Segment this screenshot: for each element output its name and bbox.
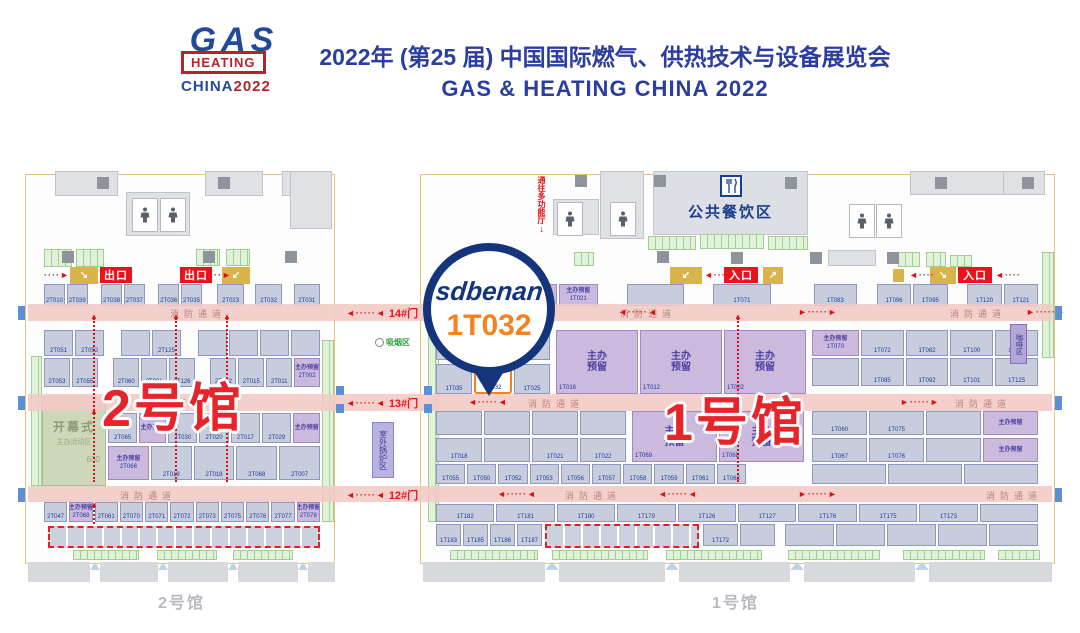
booth [812, 358, 859, 386]
pillar [62, 251, 74, 263]
booth-1T100: 1T100 [950, 330, 993, 356]
booth-1T176: 1T176 [798, 504, 856, 522]
pillar [731, 252, 743, 264]
small-booth-strip [233, 550, 293, 560]
pillar [1022, 177, 1034, 189]
booth-1T060: 1T060 [812, 411, 867, 435]
booth-1T083: 1T083 [814, 284, 858, 306]
booth-1T173: 1T173 [919, 504, 977, 522]
booth-2T029: 2T029 [262, 413, 291, 443]
booth-row: 2T0512T0522T125 [44, 330, 320, 356]
booth [980, 504, 1038, 522]
wall-block [423, 562, 545, 582]
booth-row: 1T0551T0501T0521T0531T0561T0571T0581T059… [436, 464, 746, 484]
booth-2T018: 2T018 [194, 446, 235, 480]
pillar [657, 251, 669, 263]
booth-1T127: 1T127 [738, 504, 796, 522]
booth-1T179: 1T179 [617, 504, 675, 522]
booth-1T070: 主办预留1T070 [812, 330, 859, 356]
booth-1T126: 1T126 [678, 504, 736, 522]
gate-label: ◄·····◄14#门 [346, 306, 418, 319]
lane-arrow: ►·····► [798, 307, 838, 317]
booth-1T062: 1T062 [717, 464, 746, 484]
booth-1T021: 主办预留1T021 [559, 284, 598, 306]
fire-lane-label: 消防通道 [955, 397, 1011, 410]
booth-1T025: 1T025 [514, 364, 550, 394]
booth-1T072: 1T072 [861, 330, 904, 356]
booth [926, 411, 981, 435]
booth-2T002: 主办预留2T002 [294, 358, 320, 387]
highlight-zone [545, 524, 699, 548]
aisle-arrow: ▲▲ [93, 318, 95, 482]
small-booth-cluster [700, 234, 764, 249]
booth-2T010: 2T010 [44, 284, 65, 306]
booth-1T175: 1T175 [859, 504, 917, 522]
gate-label: ◄·····◄13#门 [346, 396, 418, 409]
pillar [97, 177, 109, 189]
small-booth-strip [73, 550, 139, 560]
to-multifunction-hall-label: 通往多功能厅↓ [533, 176, 547, 235]
direction-arrow-block: ↘ [70, 267, 98, 284]
booth [436, 411, 482, 435]
gate-arrow-icon: ◄·····◄ [346, 398, 386, 408]
booth-1T120: 1T120 [967, 284, 1001, 306]
gate-marker [1055, 396, 1062, 410]
logo-heating-text: HEATING [181, 51, 266, 74]
booth-2T068: 2T068 [236, 446, 277, 480]
booth-1T076: 1T076 [869, 438, 924, 462]
booth [291, 330, 320, 356]
fire-lane-label: 消防通道 [528, 397, 584, 410]
wall-block [28, 562, 90, 582]
booth [926, 438, 981, 462]
smoking-icon [375, 338, 384, 347]
small-booth-cluster [898, 252, 920, 267]
expo-logo: GAS HEATING CHINA2022 [175, 26, 293, 114]
pillar [203, 251, 215, 263]
small-booth-strip [450, 550, 538, 560]
restroom-icon [160, 198, 186, 232]
booth [580, 411, 626, 435]
booth-row: 1T0851T0921T1011T125 [812, 358, 1038, 386]
small-booth-cluster [574, 252, 594, 266]
small-booth-strip [552, 550, 648, 560]
booth-2T052: 2T052 [75, 330, 104, 356]
booth-2T051: 2T051 [44, 330, 73, 356]
expo-title-cn: 2022年 (第25 届) 中国国际燃气、供热技术与设备展览会 [300, 38, 910, 72]
booth-2T007: 2T007 [279, 446, 320, 480]
wall-block [308, 562, 335, 582]
fire-lane: 消防通道消防通道消防通道◄·····◄◄·····◄►·····► [28, 486, 1052, 502]
booth-1T052: 1T052 [498, 464, 527, 484]
booth-1T059: 1T059 [654, 464, 683, 484]
hall1-big-label: 1号馆 [664, 380, 806, 455]
booth-row: 1T172 [703, 524, 775, 546]
logo-china-year: CHINA2022 [181, 78, 293, 95]
booth-row [436, 411, 626, 435]
booth-1T075: 1T075 [869, 411, 924, 435]
service-room [205, 171, 263, 196]
expo-title-en: GAS & HEATING CHINA 2022 [300, 76, 910, 102]
service-room [828, 250, 876, 266]
restroom-icon [132, 198, 158, 232]
booth-1T056: 1T056 [561, 464, 590, 484]
booth-2T072: 2T072 [170, 502, 193, 522]
aisle-arrow: ▲ [93, 506, 95, 524]
gate-arrow-icon: ◄·····◄ [346, 490, 386, 500]
booth-2T032: 2T032 [255, 284, 281, 306]
logo-gas-text: GAS [175, 26, 293, 54]
pillar [935, 177, 947, 189]
restroom-icon [610, 202, 636, 236]
fire-lane-label: 消防通道 [120, 489, 176, 502]
booth-1T186: 1T186 [490, 524, 515, 546]
restroom-icon [849, 204, 875, 238]
booth [785, 524, 834, 546]
booth [229, 330, 258, 356]
hall2-big-label: 2号馆 [102, 366, 244, 441]
small-booth-cluster [768, 236, 808, 250]
booth [484, 411, 530, 435]
floor-plan-page: GAS HEATING CHINA2022 2022年 (第25 届) 中国国际… [0, 0, 1080, 633]
small-booth-cluster [648, 236, 696, 250]
direction-arrow-block [893, 269, 904, 282]
booth-2T037: 2T037 [124, 284, 145, 306]
booth-1T172: 1T172 [703, 524, 738, 546]
dotted-arrow: ◄···· [909, 270, 935, 280]
booth-1T082: 1T082 [906, 330, 949, 356]
booth-1T067: 1T067 [812, 438, 867, 462]
lane-arrow: ◄·····◄ [618, 307, 658, 317]
booth-1T085: 1T085 [861, 358, 904, 386]
dotted-arrow: ····► [206, 270, 232, 280]
booth: 主办预留 [983, 438, 1038, 462]
booth-2T077: 2T077 [271, 502, 294, 522]
restaurant-icon [720, 175, 742, 197]
booth-2T039: 2T039 [67, 284, 88, 306]
booth-1T016: 主办预留1T016 [556, 330, 638, 394]
booth-row: 2T047主办预留2T0682T0612T0702T0712T0722T0732… [44, 502, 320, 522]
fire-lane-label: 消防通道 [565, 489, 621, 502]
gate-marker [336, 386, 344, 395]
small-booth-strip [157, 550, 217, 560]
booth-row: 1T0671T076主办预留 [812, 438, 1038, 462]
entrance-sign: 入口 [958, 267, 992, 283]
pillar [654, 175, 666, 187]
dotted-arrow: ····► [44, 270, 70, 280]
booth-1T021: 1T021 [532, 438, 578, 462]
pillar [285, 251, 297, 263]
exhibitor-brand-logo: sdbenan [434, 276, 544, 307]
booth-1T053: 1T053 [530, 464, 559, 484]
booth-1T061: 1T061 [686, 464, 715, 484]
booth-2T078: 主办预留2T078 [297, 502, 320, 522]
booth-2T076: 2T076 [246, 502, 269, 522]
lane-arrow: ◄·····◄ [497, 489, 537, 499]
booth: 主办预留 [293, 413, 320, 443]
gate-marker [1055, 306, 1062, 320]
smoking-area: 吸烟区 [375, 337, 410, 348]
hall2-footer-label: 2号馆 [158, 589, 205, 613]
booth-row [812, 464, 1038, 484]
exhibitor-badge: sdbenan 1T032 [423, 243, 555, 375]
booth-1T096: 1T096 [877, 284, 911, 306]
down-arrow-icon: ↓ [536, 224, 547, 235]
booth-1T121: 1T121 [1004, 284, 1038, 306]
dotted-arrow: ◄···· [995, 270, 1021, 280]
exhibitor-booth-number: 1T032 [446, 309, 531, 343]
booth-1T187: 1T187 [517, 524, 542, 546]
booth-2T066: 主办预留2T066 [108, 446, 149, 480]
highlight-zone [48, 526, 320, 548]
booth-2T011: 2T011 [266, 358, 292, 387]
gate-marker [18, 396, 25, 410]
booth-row: 1T1831T1851T1861T187 [436, 524, 542, 546]
booth-1T071: 1T071 [713, 284, 770, 306]
booth [812, 464, 886, 484]
service-room [910, 171, 1006, 195]
small-booth-cluster [226, 249, 250, 266]
booth [938, 524, 987, 546]
booth [964, 464, 1038, 484]
booth-2T047: 2T047 [44, 502, 67, 522]
hall1-footer-label: 1号馆 [712, 589, 759, 613]
booth-row [785, 524, 1038, 546]
gate-marker [1055, 488, 1062, 502]
wall-block [679, 562, 790, 582]
booth-1T101: 1T101 [950, 358, 993, 386]
small-booth-strip [998, 550, 1040, 560]
pillar [785, 177, 797, 189]
booth-2T053: 2T053 [44, 358, 70, 387]
booth-1T057: 1T057 [592, 464, 621, 484]
booth [888, 464, 962, 484]
booth-1T050: 1T050 [467, 464, 496, 484]
booth-row: 1T0601T075主办预留 [812, 411, 1038, 435]
small-booth-strip [903, 550, 985, 560]
booth-row: 1T0181T0211T022 [436, 438, 626, 462]
booth-2T023: 2T023 [217, 284, 243, 306]
booth-1T058: 1T058 [623, 464, 652, 484]
small-booth-cluster [926, 252, 946, 267]
exit-sign: 出口 [100, 267, 132, 283]
booth [989, 524, 1038, 546]
gate-marker [424, 386, 432, 395]
pillar [887, 252, 899, 264]
wall-block [804, 562, 915, 582]
booth-1T183: 1T183 [436, 524, 461, 546]
booth-row: 1T1821T1811T1801T1791T1261T1271T1761T175… [436, 504, 1038, 522]
booth-2T035: 2T035 [181, 284, 202, 306]
service-room [290, 171, 332, 229]
booth-row: 主办预留1T0701T0721T0821T1001T110 [812, 330, 1038, 356]
gate-marker [336, 404, 344, 413]
booth-1T022: 1T022 [580, 438, 626, 462]
dotted-arrow: ◄···· [704, 270, 730, 280]
wall-block [100, 562, 158, 582]
booth [198, 330, 227, 356]
wall-block [559, 562, 665, 582]
booth-2T075: 2T075 [221, 502, 244, 522]
fire-lane-label: 消防通道 [986, 489, 1042, 502]
direction-arrow-block: ↗ [763, 267, 783, 284]
booth-row: 2T0102T0392T0382T0372T0362T0352T0232T032… [44, 284, 320, 306]
booth: 主办预留 [983, 411, 1038, 435]
booth-1T018: 1T018 [436, 438, 482, 462]
booth-2T073: 2T073 [196, 502, 219, 522]
booth [121, 330, 150, 356]
booth-2T071: 2T071 [145, 502, 168, 522]
direction-arrow-block: ↙ [670, 267, 702, 284]
pillar [575, 175, 587, 187]
wall-block [929, 562, 1052, 582]
booth [836, 524, 885, 546]
booth-row: 主办预留2T0662T0192T0182T0682T007 [108, 446, 320, 480]
gate-marker [18, 306, 25, 320]
booth-1T055: 1T055 [436, 464, 465, 484]
gate-label: ◄·····◄12#门 [346, 488, 418, 501]
coffee-area: 咖啡区 [1010, 324, 1027, 364]
restroom-icon [557, 202, 583, 236]
small-booth-strip [666, 550, 762, 560]
small-booth-cluster [950, 255, 972, 267]
lane-arrow: ◄·····◄ [658, 489, 698, 499]
small-booth-strip [788, 550, 880, 560]
pillar [218, 177, 230, 189]
booth-1T185: 1T185 [463, 524, 488, 546]
pillar [810, 252, 822, 264]
booth [740, 524, 775, 546]
dining-area-label: 公共餐饮区 [688, 201, 773, 222]
gate-marker [424, 404, 432, 413]
booth-2T038: 2T038 [101, 284, 122, 306]
booth [627, 284, 684, 306]
lane-arrow: ►·····► [798, 489, 838, 499]
booth-1T182: 1T182 [436, 504, 494, 522]
booth-2T061: 2T061 [95, 502, 118, 522]
booth [484, 438, 530, 462]
lane-arrow: ►·····► [900, 397, 940, 407]
booth-2T031: 2T031 [294, 284, 320, 306]
wall-block [168, 562, 228, 582]
booth-2T070: 2T070 [120, 502, 143, 522]
restroom-icon [876, 204, 902, 238]
gate-arrow-icon: ◄·····◄ [346, 308, 386, 318]
booth-1T095: 1T095 [913, 284, 947, 306]
booth-1T181: 1T181 [496, 504, 554, 522]
lane-arrow: ◄·····◄ [468, 397, 508, 407]
booth-2T036: 2T036 [158, 284, 179, 306]
fire-lane-label: 消防通道 [950, 307, 1006, 320]
smoking-area-label: 吸烟区 [386, 337, 410, 348]
wall-block [238, 562, 298, 582]
booth [260, 330, 289, 356]
outdoor-boiler-area: 室外锅炉区 [372, 422, 394, 478]
booth [532, 411, 578, 435]
booth-1T180: 1T180 [557, 504, 615, 522]
gate-marker [18, 488, 25, 502]
booth-1T092: 1T092 [906, 358, 949, 386]
booth-2T019: 2T019 [151, 446, 192, 480]
small-booth-strip [31, 356, 42, 486]
booth [887, 524, 936, 546]
small-booth-cluster [76, 249, 104, 267]
